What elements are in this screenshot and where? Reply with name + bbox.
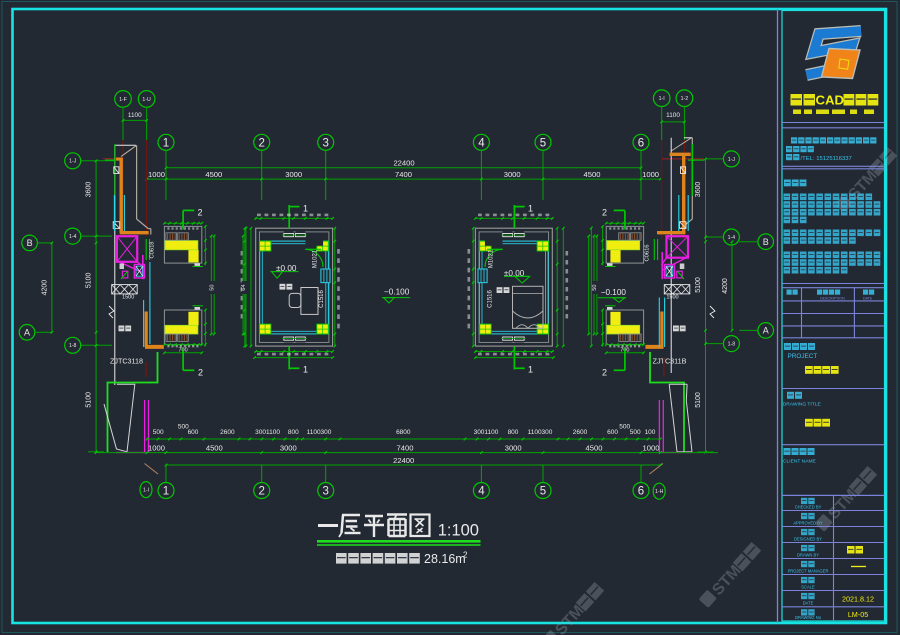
- svg-text:DATE: DATE: [863, 296, 873, 300]
- svg-text:LM-05: LM-05: [848, 610, 868, 619]
- svg-text:2: 2: [198, 368, 203, 378]
- svg-text:ZJTC3118: ZJTC3118: [110, 357, 143, 366]
- svg-text:1:100: 1:100: [438, 522, 479, 540]
- svg-text:600: 600: [607, 429, 618, 436]
- svg-text:1: 1: [303, 365, 308, 375]
- svg-text:6800: 6800: [396, 429, 411, 436]
- svg-text:50: 50: [209, 284, 215, 290]
- svg-text:800: 800: [508, 429, 519, 436]
- svg-text:1000: 1000: [642, 170, 659, 179]
- svg-text:1-2: 1-2: [681, 96, 689, 102]
- svg-text:600: 600: [188, 429, 199, 436]
- svg-text:C1516: C1516: [319, 290, 325, 308]
- svg-text:4: 4: [478, 486, 485, 498]
- svg-text:500: 500: [630, 429, 641, 436]
- svg-text:C0616: C0616: [645, 244, 651, 261]
- svg-text:1100300: 1100300: [307, 429, 332, 436]
- svg-text:2: 2: [602, 208, 607, 218]
- svg-text:CLIENT NAME: CLIENT NAME: [783, 458, 817, 464]
- svg-text:4: 4: [478, 137, 485, 149]
- svg-text:22400: 22400: [393, 158, 414, 167]
- svg-text:2: 2: [602, 368, 607, 378]
- svg-text:1-J: 1-J: [728, 157, 736, 163]
- svg-text:CAD: CAD: [816, 93, 845, 108]
- svg-text:4500: 4500: [584, 170, 601, 179]
- svg-text:5100: 5100: [695, 392, 702, 408]
- svg-text:1-4: 1-4: [728, 235, 736, 241]
- svg-text:6: 6: [638, 486, 644, 498]
- svg-text:M1021: M1021: [489, 249, 495, 268]
- svg-text:APPROVED BY: APPROVED BY: [793, 520, 823, 525]
- svg-text:3000: 3000: [285, 170, 302, 179]
- svg-text:6: 6: [638, 137, 644, 149]
- svg-text:DESCRIPTION: DESCRIPTION: [820, 296, 845, 300]
- svg-text:B: B: [763, 237, 769, 247]
- svg-text:4200: 4200: [42, 280, 49, 296]
- svg-text:1-I: 1-I: [659, 96, 665, 102]
- svg-text:1500: 1500: [122, 295, 134, 301]
- svg-text:1: 1: [163, 137, 169, 149]
- svg-text:64: 64: [241, 284, 247, 290]
- svg-text:1: 1: [163, 486, 169, 498]
- svg-text:PROJECT MANAGER: PROJECT MANAGER: [788, 568, 829, 573]
- svg-text:2600: 2600: [220, 429, 235, 436]
- svg-text:3: 3: [322, 486, 328, 498]
- svg-text:4500: 4500: [205, 170, 222, 179]
- svg-text:3000: 3000: [280, 443, 297, 452]
- svg-text:2021.8.12: 2021.8.12: [842, 595, 874, 604]
- svg-text:3000: 3000: [504, 170, 521, 179]
- svg-text:5100: 5100: [86, 392, 93, 408]
- svg-text:/TEL: 15125116337: /TEL: 15125116337: [801, 156, 852, 162]
- svg-text:C0618: C0618: [150, 241, 156, 258]
- svg-text:1500: 1500: [666, 295, 678, 301]
- svg-text:50: 50: [592, 284, 598, 290]
- svg-text:500: 500: [153, 429, 164, 436]
- svg-text:1-F: 1-F: [119, 97, 127, 103]
- svg-text:1-I: 1-I: [143, 487, 149, 493]
- svg-text:2: 2: [463, 551, 468, 560]
- svg-text:3: 3: [322, 137, 328, 149]
- svg-text:DATE: DATE: [803, 601, 814, 606]
- svg-text:2: 2: [258, 486, 264, 498]
- svg-text:100: 100: [645, 429, 656, 436]
- svg-text:DRAWING TITLE: DRAWING TITLE: [783, 401, 822, 407]
- svg-text:5100: 5100: [86, 273, 93, 289]
- svg-text:PROJECT: PROJECT: [788, 353, 818, 360]
- svg-text:5: 5: [540, 486, 546, 498]
- svg-text:5: 5: [540, 137, 546, 149]
- svg-text:1: 1: [528, 204, 533, 214]
- svg-text:DRAWN BY: DRAWN BY: [797, 552, 819, 557]
- svg-text:DRAWING No: DRAWING No: [795, 615, 822, 620]
- svg-text:2: 2: [198, 208, 203, 218]
- svg-text:1000: 1000: [643, 443, 660, 452]
- svg-text:3600: 3600: [86, 182, 93, 198]
- svg-text:−0.100: −0.100: [384, 287, 410, 296]
- svg-text:B: B: [27, 238, 33, 248]
- svg-text:4500: 4500: [206, 443, 223, 452]
- svg-text:7400: 7400: [397, 443, 414, 452]
- svg-text:2600: 2600: [573, 429, 588, 436]
- svg-text:1-4: 1-4: [69, 234, 77, 240]
- svg-text:1-U: 1-U: [142, 97, 151, 103]
- svg-text:7400: 7400: [395, 170, 412, 179]
- svg-text:1: 1: [528, 365, 533, 375]
- svg-text:A: A: [24, 328, 30, 338]
- svg-text:4200: 4200: [722, 278, 729, 294]
- svg-text:1000: 1000: [148, 170, 165, 179]
- svg-text:ZJTC311B: ZJTC311B: [653, 357, 687, 366]
- svg-text:3001100: 3001100: [474, 429, 499, 436]
- svg-text:1-J: 1-J: [69, 159, 77, 165]
- svg-text:1100300: 1100300: [528, 429, 553, 436]
- svg-text:22400: 22400: [393, 456, 414, 465]
- svg-text:4500: 4500: [586, 443, 603, 452]
- svg-text:CHECKED BY: CHECKED BY: [795, 504, 822, 509]
- svg-text:2: 2: [258, 137, 264, 149]
- svg-text:SCALE: SCALE: [801, 584, 815, 589]
- svg-text:1-H: 1-H: [655, 489, 664, 495]
- svg-text:1-8: 1-8: [728, 341, 736, 347]
- svg-text:3001100: 3001100: [255, 429, 280, 436]
- svg-text:5100: 5100: [695, 277, 702, 293]
- svg-text:1100: 1100: [128, 112, 142, 119]
- svg-text:1: 1: [303, 204, 308, 214]
- svg-text:1000: 1000: [148, 443, 165, 452]
- svg-text:DESIGNED BY: DESIGNED BY: [794, 536, 822, 541]
- svg-text:800: 800: [288, 429, 299, 436]
- svg-text:M1021: M1021: [313, 249, 319, 268]
- svg-text:1100: 1100: [666, 112, 680, 119]
- svg-text:1-8: 1-8: [69, 343, 77, 349]
- svg-text:3000: 3000: [505, 443, 522, 452]
- svg-text:−0.100: −0.100: [601, 288, 627, 297]
- svg-text:28.16m: 28.16m: [424, 552, 466, 566]
- svg-text:C1516: C1516: [488, 290, 494, 308]
- svg-text:A: A: [763, 326, 769, 336]
- svg-text:3600: 3600: [695, 182, 702, 198]
